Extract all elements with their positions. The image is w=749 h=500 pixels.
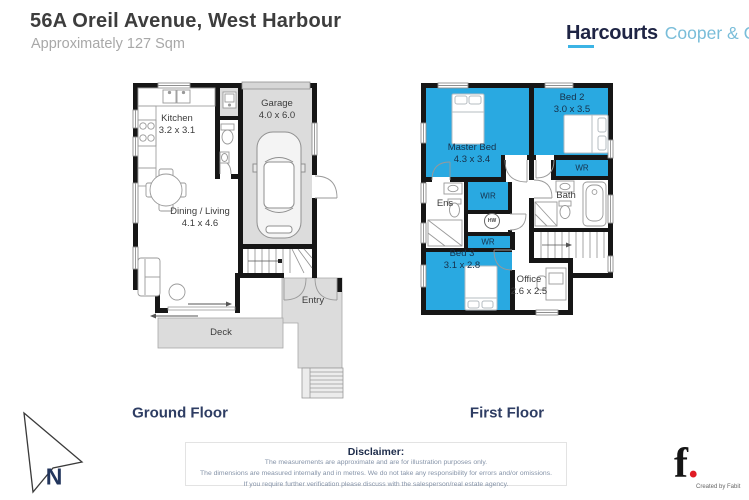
room-label-deck: Deck — [210, 327, 232, 339]
room-label-hw: HW — [488, 218, 496, 224]
entry-porch-floor — [282, 278, 342, 368]
page-subtitle: Approximately 127 Sqm — [31, 36, 185, 52]
room-label-wr-bed3: WR — [481, 238, 494, 247]
room-label-ens: Ens — [437, 198, 453, 210]
room-label-wir: WIR — [480, 192, 496, 201]
room-label-wr-bed2: WR — [575, 164, 588, 173]
fabit-dot: . — [688, 441, 699, 487]
room-label-office: Office 2.6 x 2.5 — [511, 274, 547, 298]
ground-floor-title: Ground Floor — [132, 405, 228, 422]
ground-floor-plan: Kitchen 3.2 x 3.1 Garage 4.0 x 6.0 Dinin… — [130, 80, 365, 410]
bed2-name: Bed 2 — [554, 92, 590, 104]
exterior-stairs — [302, 368, 343, 398]
garage-dims: 4.0 x 6.0 — [259, 110, 295, 122]
room-label-master: Master Bed 4.3 x 3.4 — [448, 142, 497, 166]
master-name: Master Bed — [448, 142, 497, 154]
bed3-bed-icon — [465, 266, 497, 310]
bed2-bed-icon — [564, 115, 608, 153]
laundry-sink — [223, 92, 236, 108]
bed3-name: Bed 3 — [444, 248, 480, 260]
first-floor-title: First Floor — [470, 405, 544, 422]
garage-door — [242, 82, 310, 89]
master-bed-icon — [452, 94, 484, 144]
fabit-logo: f. — [674, 442, 699, 486]
room-label-entry: Entry — [302, 295, 324, 307]
page-title: 56A Oreil Avenue, West Harbour — [30, 10, 341, 33]
room-label-garage: Garage 4.0 x 6.0 — [259, 98, 295, 122]
office-name: Office — [511, 274, 547, 286]
office-dims: 2.6 x 2.5 — [511, 286, 547, 298]
room-label-dining: Dining / Living 4.1 x 4.6 — [170, 206, 230, 230]
brand-logo: HarcourtsCooper & Co — [566, 22, 749, 45]
fabit-credit-text: Created by Fabit — [696, 484, 740, 490]
brand-primary: Harcourts — [566, 22, 658, 44]
room-label-kitchen: Kitchen 3.2 x 3.1 — [159, 113, 195, 137]
bed2-dims: 3.0 x 3.5 — [554, 104, 590, 116]
bed3-dims: 3.1 x 2.8 — [444, 260, 480, 272]
disclaimer-title: Disclaimer: — [186, 446, 566, 458]
fabit-mark: f — [674, 441, 688, 487]
brand-underline-accent — [568, 45, 594, 48]
kitchen-dims: 3.2 x 3.1 — [159, 125, 195, 137]
sofa — [138, 258, 160, 296]
kitchen-name: Kitchen — [159, 113, 195, 125]
disclaimer-line-2: The dimensions are measured internally a… — [186, 469, 566, 480]
dining-name: Dining / Living — [170, 206, 230, 218]
disclaimer-line-1: The measurements are approximate and are… — [186, 458, 566, 469]
brand-secondary: Cooper & Co — [665, 23, 749, 43]
side-table — [169, 284, 185, 300]
dining-dims: 4.1 x 4.6 — [170, 218, 230, 230]
floorplan-page: 56A Oreil Avenue, West Harbour Approxima… — [0, 0, 749, 500]
disclaimer-box: Disclaimer: The measurements are approxi… — [185, 442, 567, 486]
room-label-bed2: Bed 2 3.0 x 3.5 — [554, 92, 590, 116]
master-dims: 4.3 x 3.4 — [448, 154, 497, 166]
disclaimer-line-3: If you require further verification plea… — [186, 480, 566, 491]
car-icon — [253, 132, 305, 238]
room-label-bath: Bath — [556, 190, 576, 202]
north-label: N — [46, 464, 63, 491]
garage-name: Garage — [259, 98, 295, 110]
room-label-bed3: Bed 3 3.1 x 2.8 — [444, 248, 480, 272]
first-floor-plan: Master Bed 4.3 x 3.4 Bed 2 3.0 x 3.5 WR … — [418, 80, 628, 320]
